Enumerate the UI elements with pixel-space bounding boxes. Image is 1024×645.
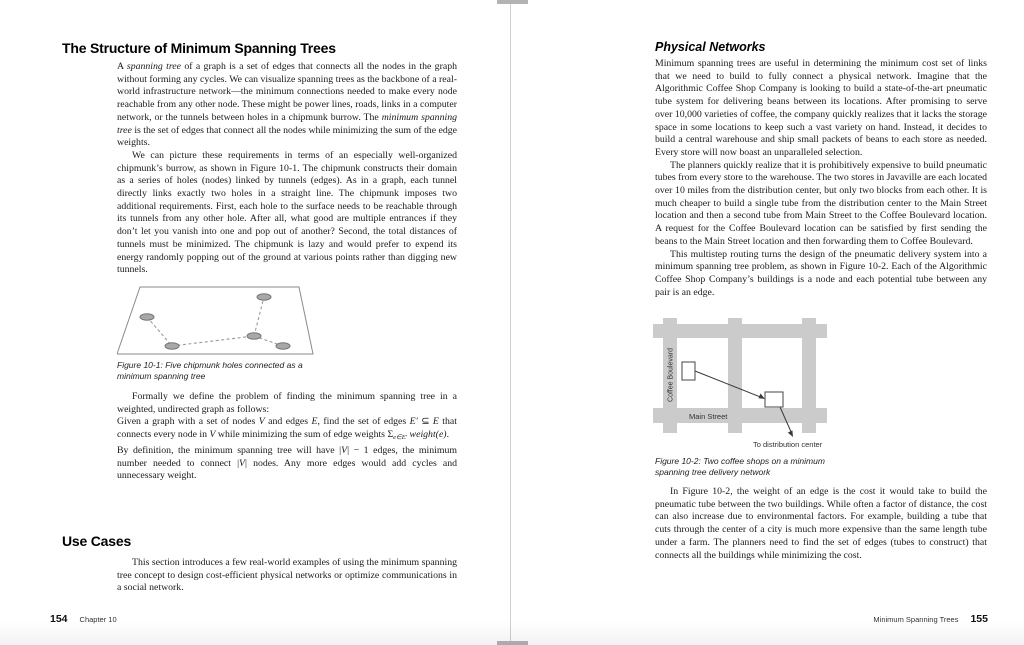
paragraph-edge-count: By definition, the minimum spanning tree… xyxy=(117,445,457,483)
left-body-block-2: Formally we define the problem of findin… xyxy=(117,391,457,483)
text-run: while minimizing the sum of edge weights xyxy=(215,429,387,440)
chipmunk-hole-node xyxy=(257,294,271,300)
section-heading-use-cases: Use Cases xyxy=(62,533,131,549)
text-run: , find the set of edges xyxy=(317,416,409,427)
coffee-shop-main-street-node xyxy=(765,392,783,407)
street-grid xyxy=(653,318,827,433)
chipmunk-hole-node xyxy=(276,343,290,349)
chipmunk-hole-node xyxy=(140,314,154,320)
right-page-footer: Minimum Spanning Trees155 xyxy=(873,609,988,627)
label-coffee-boulevard: Coffee Boulevard xyxy=(668,348,675,402)
paragraph-physical-networks-intro: Minimum spanning trees are useful in det… xyxy=(655,58,987,160)
arrowhead-icon xyxy=(759,394,766,400)
text-run: is the set of edges that connect all the… xyxy=(117,125,457,149)
left-page: The Structure of Minimum Spanning Trees … xyxy=(0,0,510,645)
paragraph-use-cases-intro: This section introduces a few real-world… xyxy=(117,557,457,595)
section-heading-structure-of-mst: The Structure of Minimum Spanning Trees xyxy=(62,40,336,56)
figure-10-2-street-map-diagram: Coffee Boulevard Main Street To distribu… xyxy=(653,318,829,452)
running-head-title: Minimum Spanning Trees xyxy=(873,615,958,624)
figure-10-1-chipmunk-holes-diagram xyxy=(117,284,317,358)
summation-subscript: e∈E′ xyxy=(393,434,407,441)
right-page: Physical Networks Minimum spanning trees… xyxy=(512,0,1024,645)
paragraph-spanning-tree-definition: A spanning tree of a graph is a set of e… xyxy=(117,61,457,150)
label-to-distribution-center: To distribution center xyxy=(753,440,823,449)
math-weight-function: weight(e) xyxy=(407,429,446,440)
paragraph-chipmunk-burrow: We can picture these requirements in ter… xyxy=(117,150,457,277)
arrowhead-icon xyxy=(788,430,793,437)
subset-symbol: ⊆ xyxy=(418,416,433,427)
right-body-block-2: In Figure 10-2, the weight of an edge is… xyxy=(655,486,987,562)
chipmunk-hole-node xyxy=(247,333,261,339)
page-number: 155 xyxy=(970,613,988,625)
spine-tab-top xyxy=(497,0,528,4)
left-body-block-1: A spanning tree of a graph is a set of e… xyxy=(117,61,457,277)
text-run: and edges xyxy=(265,416,312,427)
left-body-block-3: This section introduces a few real-world… xyxy=(117,557,457,595)
paragraph-edge-weight-cost: In Figure 10-2, the weight of an edge is… xyxy=(655,486,987,562)
paragraph-formal-definition: Formally we define the problem of findin… xyxy=(117,391,457,416)
formal-problem-extract: Given a graph with a set of nodes V and … xyxy=(117,416,457,444)
page-number: 154 xyxy=(50,613,68,625)
street-right xyxy=(802,318,816,433)
emphasis-spanning-tree: spanning tree xyxy=(127,61,181,72)
math-var-E-prime: E′ xyxy=(410,416,418,427)
paragraph-multistep-routing: This multistep routing turns the design … xyxy=(655,249,987,300)
right-body-block-1: Minimum spanning trees are useful in det… xyxy=(655,58,987,299)
coffee-shop-boulevard-node xyxy=(682,362,695,380)
section-heading-physical-networks: Physical Networks xyxy=(655,40,765,54)
figure-10-1-caption: Figure 10-1: Five chipmunk holes connect… xyxy=(117,360,332,382)
chipmunk-hole-node xyxy=(165,343,179,349)
street-middle xyxy=(728,318,742,433)
spine-tab-bottom xyxy=(497,641,528,645)
text-run: Given a graph with a set of nodes xyxy=(117,416,259,427)
text-run: By definition, the minimum spanning tree… xyxy=(117,445,341,456)
figure-10-2-caption: Figure 10-2: Two coffee shops on a minim… xyxy=(655,456,850,478)
left-page-footer: 154Chapter 10 xyxy=(50,609,117,627)
page-spine-divider xyxy=(510,0,511,645)
text-run: . xyxy=(447,429,449,440)
text-run: A xyxy=(117,61,127,72)
label-main-street: Main Street xyxy=(689,412,728,421)
paragraph-planners-realize: The planners quickly realize that it is … xyxy=(655,160,987,249)
running-head-chapter: Chapter 10 xyxy=(80,615,117,624)
